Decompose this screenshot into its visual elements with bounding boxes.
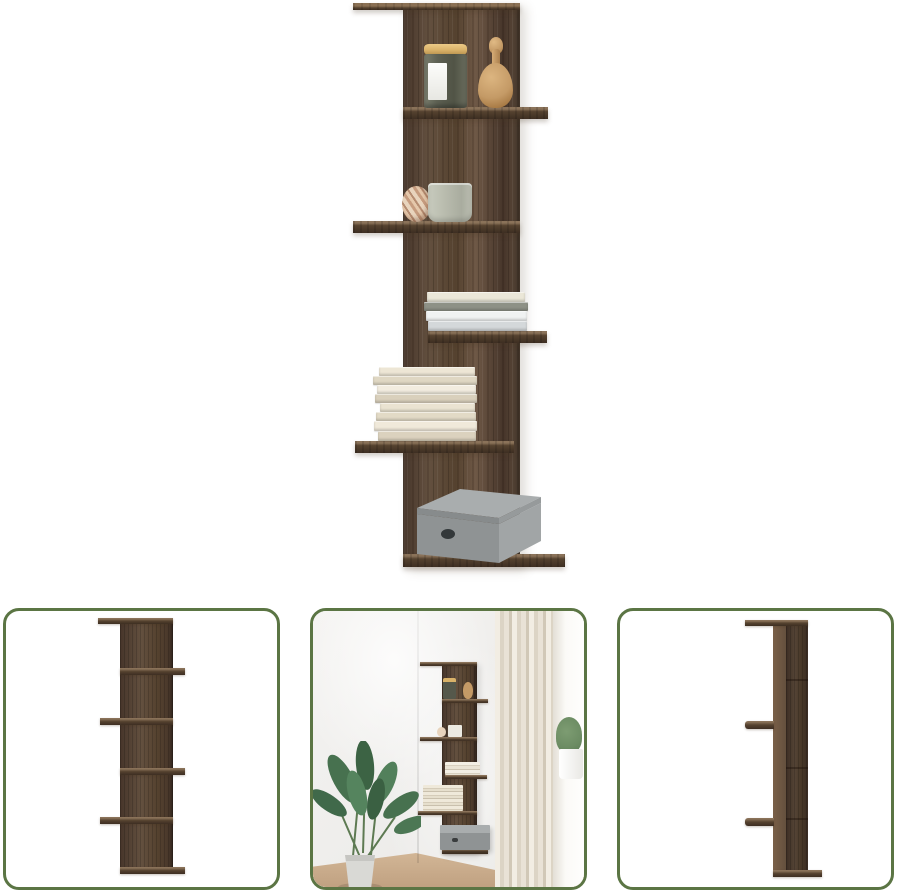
side-top-board bbox=[745, 620, 808, 626]
mini-shelf-spine bbox=[120, 618, 173, 874]
book-stack-small bbox=[424, 292, 531, 331]
side-seam-3 bbox=[786, 818, 808, 820]
shelf-board-1 bbox=[403, 107, 548, 119]
windowsill-plant-icon bbox=[556, 717, 582, 753]
thumbnail-side-view[interactable] bbox=[617, 608, 894, 890]
book bbox=[377, 385, 476, 394]
book bbox=[375, 394, 477, 403]
decor-striped-ball bbox=[402, 186, 431, 222]
book bbox=[373, 376, 477, 385]
mini-board-3 bbox=[120, 768, 185, 775]
room-box-handle bbox=[452, 838, 458, 842]
book bbox=[379, 367, 475, 376]
book bbox=[374, 421, 477, 431]
room-wall bbox=[313, 611, 584, 887]
side-shelf-edge bbox=[773, 620, 786, 877]
book bbox=[424, 302, 528, 311]
room-decor-figurine bbox=[463, 682, 473, 699]
side-shelf-panel bbox=[786, 620, 808, 877]
shelf-board-4 bbox=[355, 441, 514, 453]
mini-board-1 bbox=[120, 668, 185, 675]
jar-label bbox=[428, 63, 447, 100]
room-board-1 bbox=[442, 699, 488, 703]
product-gallery bbox=[0, 0, 900, 894]
book bbox=[380, 403, 475, 412]
room-board-4 bbox=[418, 811, 477, 815]
room-top-board bbox=[420, 662, 477, 666]
room-gray-box bbox=[440, 825, 490, 850]
mini-bottom-board bbox=[120, 867, 185, 874]
side-shelf-stub-low bbox=[745, 818, 774, 826]
book bbox=[427, 292, 525, 302]
thumbnail-room-scene[interactable] bbox=[310, 608, 587, 890]
room-decor-cup bbox=[448, 725, 462, 737]
book bbox=[376, 412, 476, 421]
decor-gray-storage-box bbox=[415, 486, 543, 565]
room-board-2 bbox=[420, 737, 477, 741]
book bbox=[426, 311, 527, 321]
curtain bbox=[495, 611, 553, 887]
mini-board-2 bbox=[100, 718, 173, 725]
thumbnail-front-view[interactable] bbox=[3, 608, 280, 890]
book bbox=[428, 321, 527, 331]
side-bottom-foot bbox=[773, 870, 822, 877]
side-seam-2 bbox=[786, 767, 808, 769]
shelf-board-3 bbox=[428, 331, 547, 343]
room-decor-jar bbox=[443, 678, 456, 699]
book-stack-large bbox=[373, 367, 481, 441]
side-shelf-stub-mid bbox=[745, 721, 774, 729]
decor-wooden-figurine bbox=[477, 37, 514, 108]
room-decor-ball bbox=[437, 727, 446, 737]
mini-board-4 bbox=[100, 817, 173, 824]
decor-glass-jar bbox=[424, 44, 467, 108]
shelf-board-2 bbox=[353, 221, 520, 233]
shelf-top-board bbox=[353, 3, 520, 10]
room-book-stack-large bbox=[423, 785, 463, 811]
windowsill-pot bbox=[559, 749, 583, 779]
side-seam-1 bbox=[786, 679, 808, 681]
figurine-body bbox=[478, 63, 513, 108]
room-board-3 bbox=[445, 775, 487, 779]
book bbox=[378, 431, 476, 441]
mini-top-board bbox=[98, 618, 173, 624]
potted-plant-icon bbox=[313, 741, 421, 890]
jar-glass-body bbox=[424, 54, 467, 108]
decor-ceramic-cup bbox=[428, 183, 472, 222]
room-book-stack-small bbox=[445, 762, 480, 775]
